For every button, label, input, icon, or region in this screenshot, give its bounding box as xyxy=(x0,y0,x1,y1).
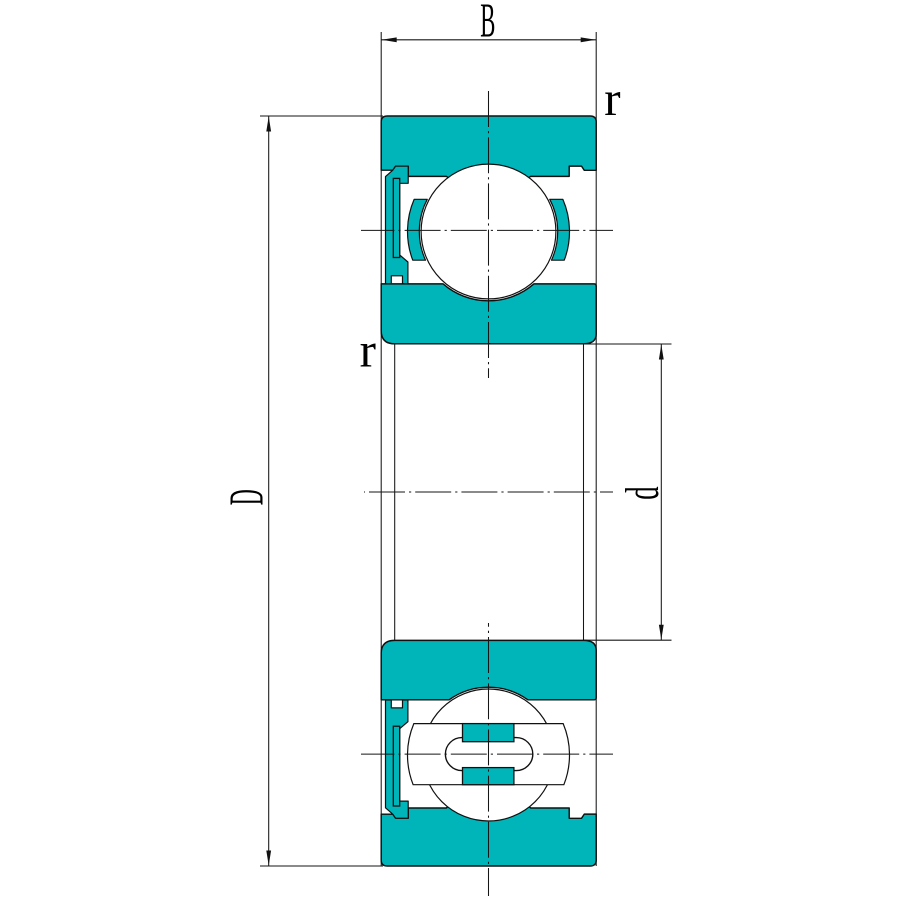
svg-text:D: D xyxy=(221,489,274,505)
svg-text:B: B xyxy=(480,0,495,48)
svg-text:r: r xyxy=(604,71,620,126)
svg-text:r: r xyxy=(360,323,376,378)
svg-text:d: d xyxy=(616,486,669,499)
